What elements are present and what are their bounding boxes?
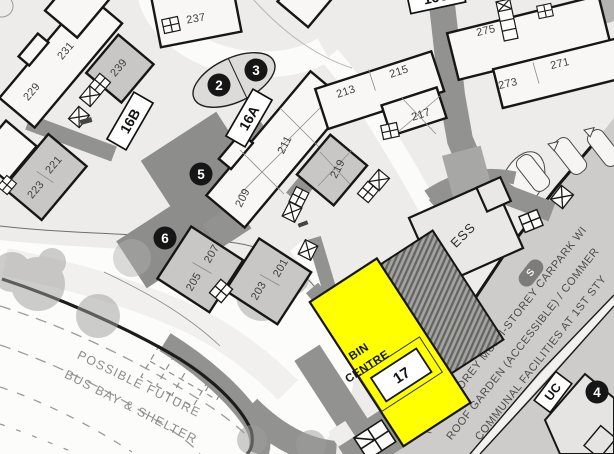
site-plan: UC 4 (6 / 6 - STOREY MULTI-STOREY CARPAR… xyxy=(0,0,614,454)
lift-core-icon xyxy=(537,3,554,18)
marker-4-text: 4 xyxy=(593,385,601,400)
marker-3-text: 3 xyxy=(252,63,260,78)
tree xyxy=(113,239,151,277)
marker-2-text: 2 xyxy=(215,78,223,93)
marker-4: 4 xyxy=(586,381,609,404)
lift-core-icon xyxy=(162,16,181,33)
marker-6-text: 6 xyxy=(161,231,169,246)
marker-5-text: 5 xyxy=(197,167,205,182)
lift-core-icon xyxy=(381,122,400,139)
site-plan-svg: UC 4 (6 / 6 - STOREY MULTI-STOREY CARPAR… xyxy=(0,0,614,454)
